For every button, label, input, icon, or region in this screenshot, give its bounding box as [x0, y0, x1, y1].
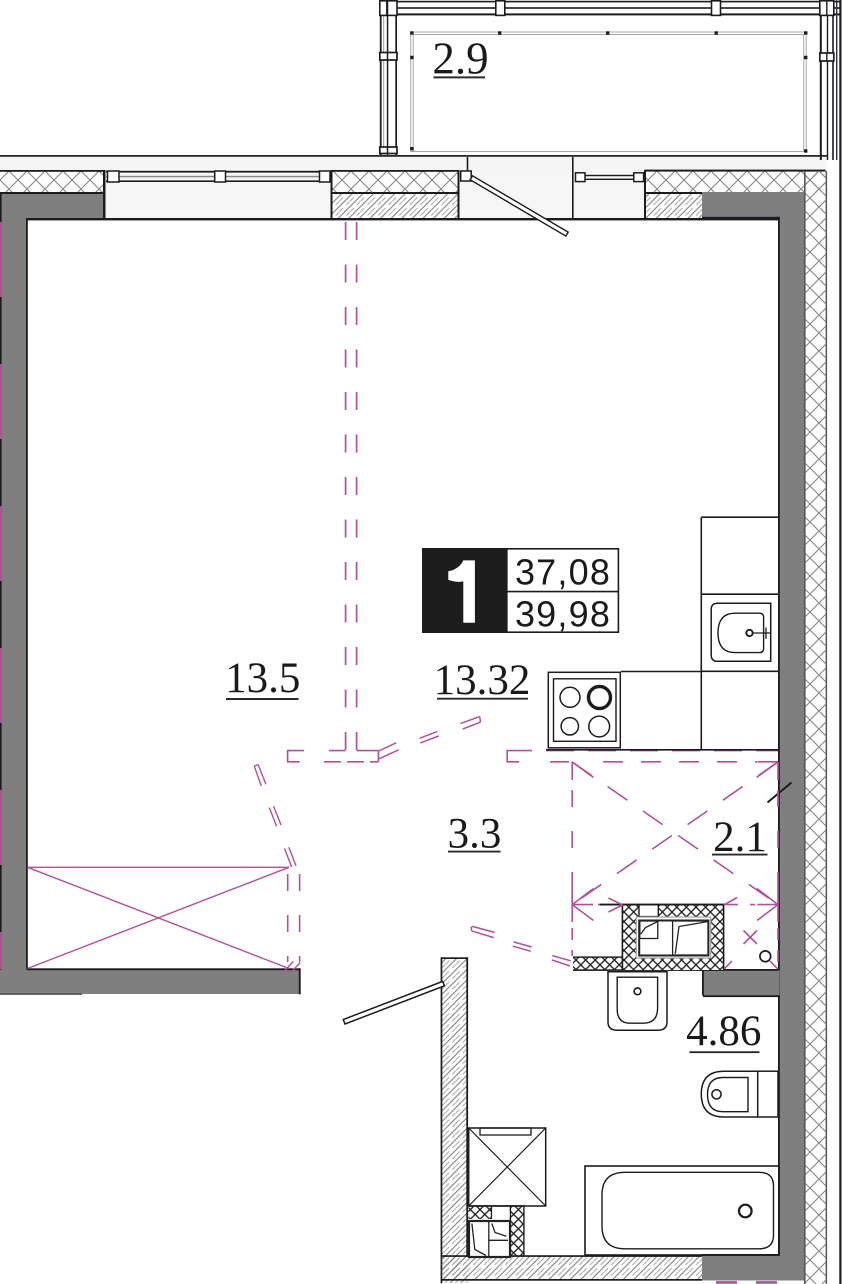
svg-text:37,08: 37,08 [515, 552, 611, 593]
svg-text:39,98: 39,98 [515, 594, 611, 635]
svg-text:3.3: 3.3 [448, 811, 502, 858]
svg-text:2.9: 2.9 [432, 34, 488, 84]
svg-text:13.5: 13.5 [225, 655, 300, 702]
svg-text:4.86: 4.86 [686, 1008, 761, 1055]
svg-text:13.32: 13.32 [434, 657, 531, 704]
